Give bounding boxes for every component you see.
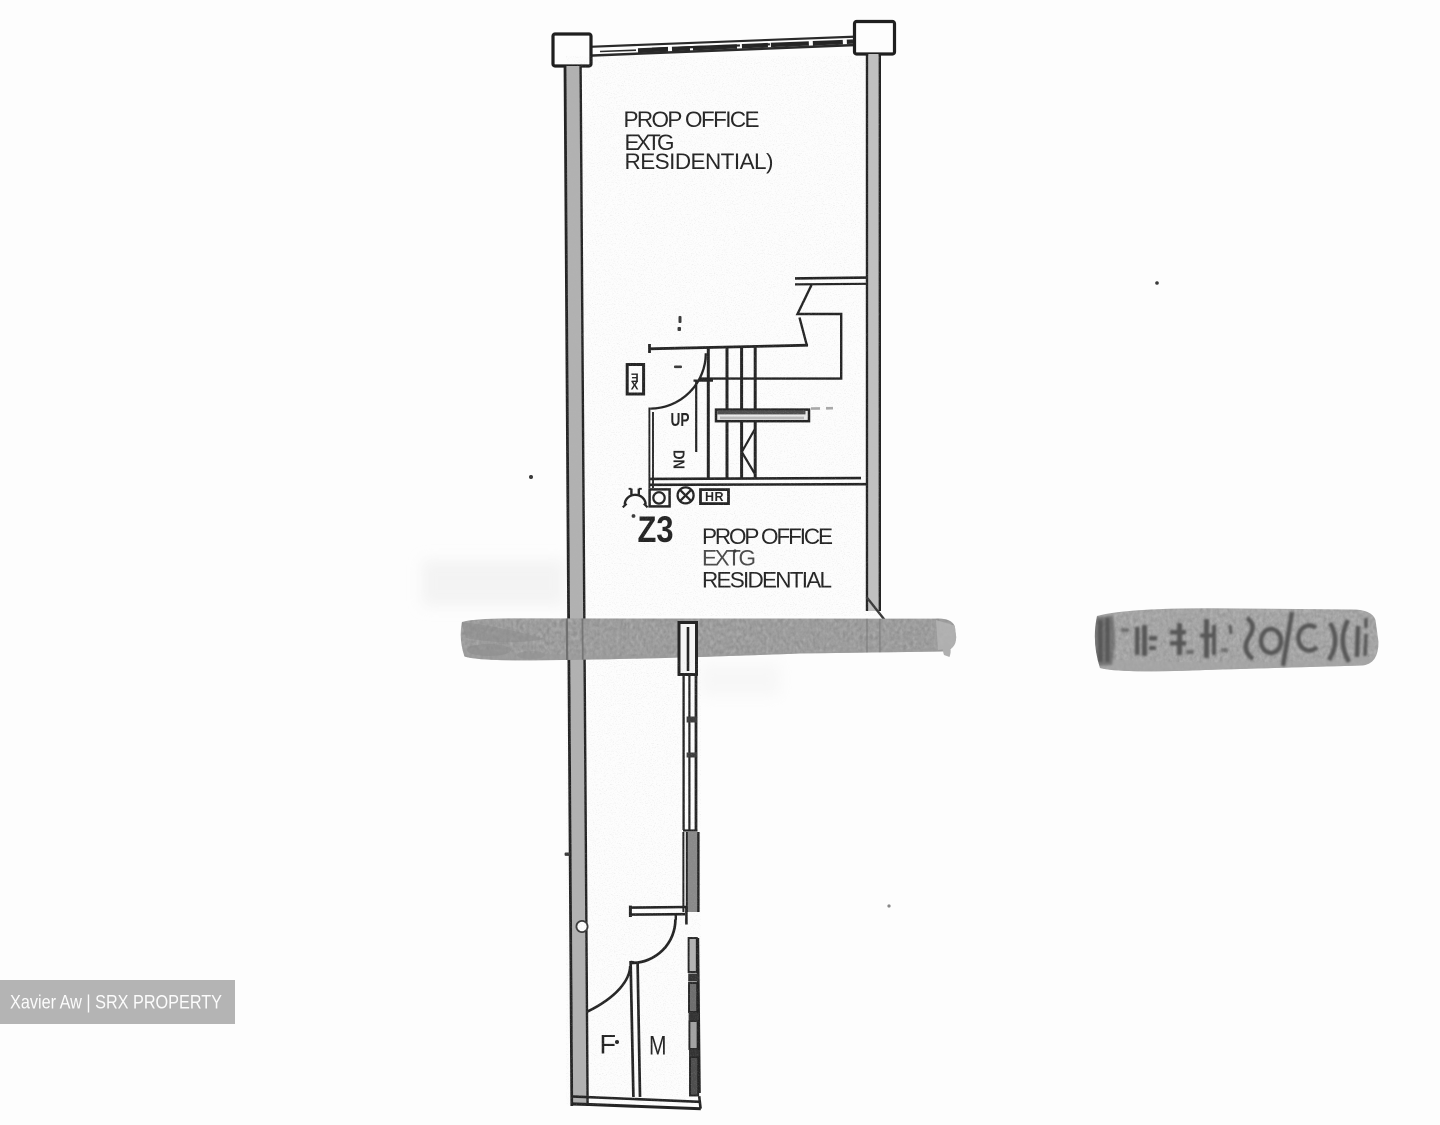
svg-text:Xavier Aw | SRX PROPERTY: Xavier Aw | SRX PROPERTY: [10, 993, 222, 1014]
